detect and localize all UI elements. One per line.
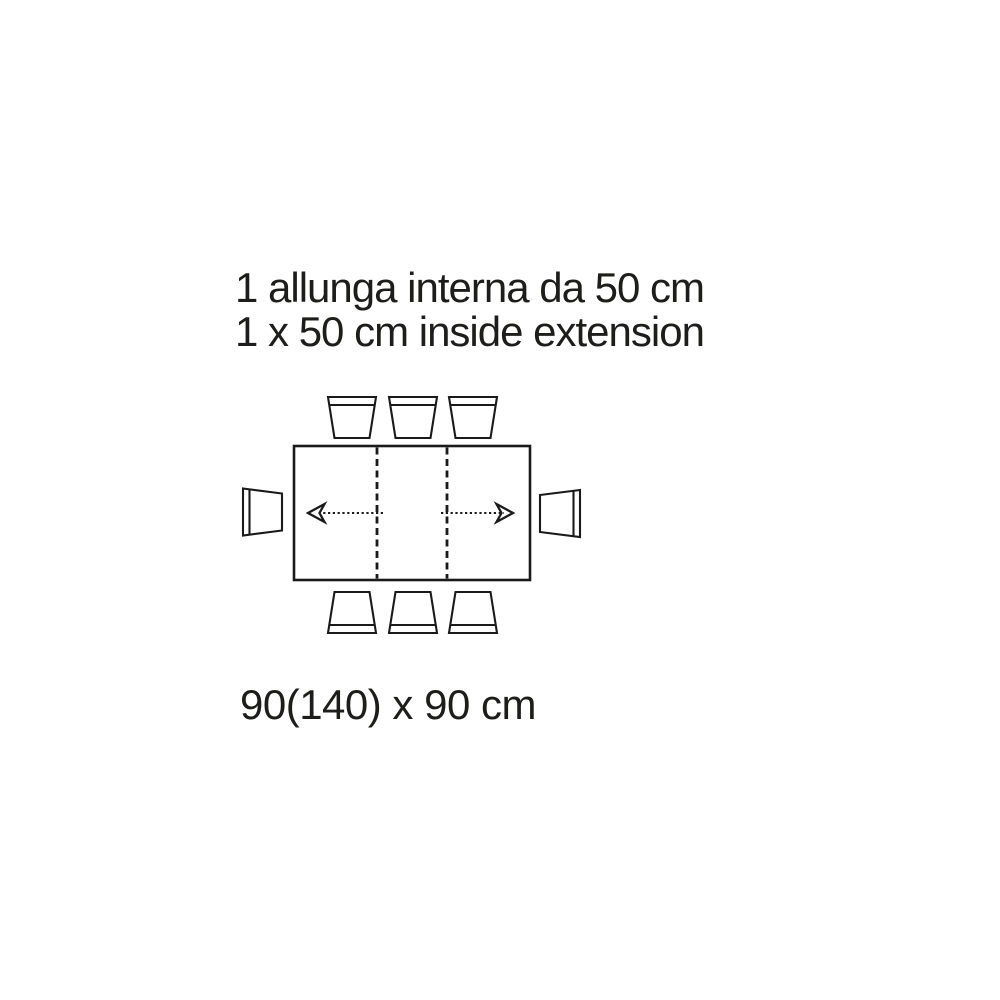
chair-bottom-2 bbox=[389, 592, 437, 633]
extension-arrow-right bbox=[441, 504, 513, 522]
chair-right bbox=[540, 490, 580, 537]
table-diagram bbox=[0, 0, 1000, 1000]
arrow-left-icon bbox=[308, 504, 325, 522]
chair-bottom-3 bbox=[449, 592, 497, 633]
product-dimension-diagram: 1 allunga interna da 50 cm 1 x 50 cm ins… bbox=[0, 0, 1000, 1000]
dimension-label: 90(140) x 90 cm bbox=[240, 681, 536, 729]
chair-left bbox=[243, 489, 282, 536]
chair-top-1 bbox=[328, 397, 376, 438]
chair-bottom-1 bbox=[328, 592, 376, 633]
chair-top-3 bbox=[449, 397, 497, 438]
extension-arrow-left bbox=[308, 504, 383, 522]
chair-top-2 bbox=[389, 397, 437, 438]
